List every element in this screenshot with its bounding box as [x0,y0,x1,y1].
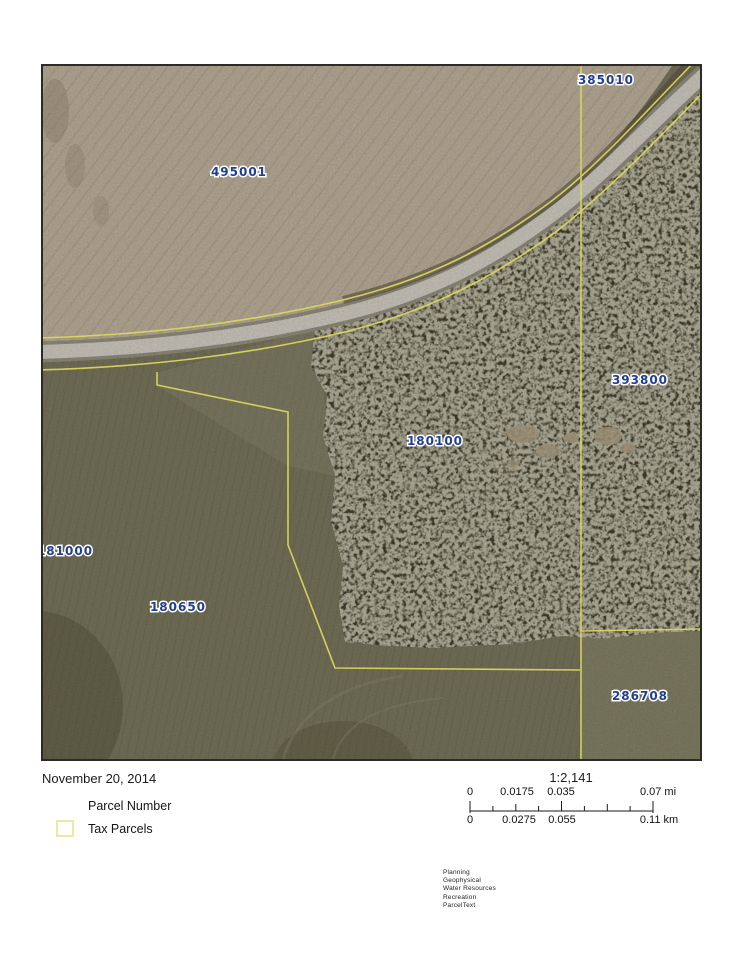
scalebar [466,800,660,813]
scalebar-mi-tick-1: 0.0175 [500,786,534,798]
parcel-label: 180650 [150,600,206,614]
credit-line: Water Resources [443,885,496,893]
map-date: November 20, 2014 [42,771,156,786]
credit-line: Geophysical [443,877,496,885]
credit-line: Recreation [443,894,496,902]
parcel-label: 385010 [578,73,634,87]
parcel-label: 393800 [612,373,668,387]
scale-ratio: 1:2,141 [506,770,636,785]
map-viewport: 3850104950013938001801001810001806502867… [41,64,702,761]
parcel-label: 286708 [612,689,668,703]
credit-line: Planning [443,869,496,877]
legend-item-parcel-number: Parcel Number [88,799,171,813]
legend-item-tax-parcels: Tax Parcels [88,822,153,836]
parcel-label: 181000 [43,544,93,558]
layer-credits: PlanningGeophysicalWater ResourcesRecrea… [443,869,496,910]
scalebar-mi-tick-2: 0.035 [547,786,575,798]
scalebar-km-tick-0: 0 [467,814,473,826]
scalebar-km-tick-2: 0.055 [548,814,576,826]
scalebar-km-tick-3: 0.11 km [640,814,678,826]
map-export-page: 3850104950013938001801001810001806502867… [0,0,741,959]
scalebar-mi-tick-0: 0 [467,786,473,798]
scalebar-km-tick-1: 0.0275 [502,814,536,826]
scalebar-mi-tick-3: 0.07 mi [640,786,676,798]
tax-parcels-swatch [56,820,74,837]
aerial-map: 3850104950013938001801001810001806502867… [43,66,700,759]
parcel-label: 180100 [407,434,463,448]
credit-line: ParcelText [443,902,496,910]
parcel-label: 495001 [211,165,267,179]
imagery-grain [43,66,700,759]
